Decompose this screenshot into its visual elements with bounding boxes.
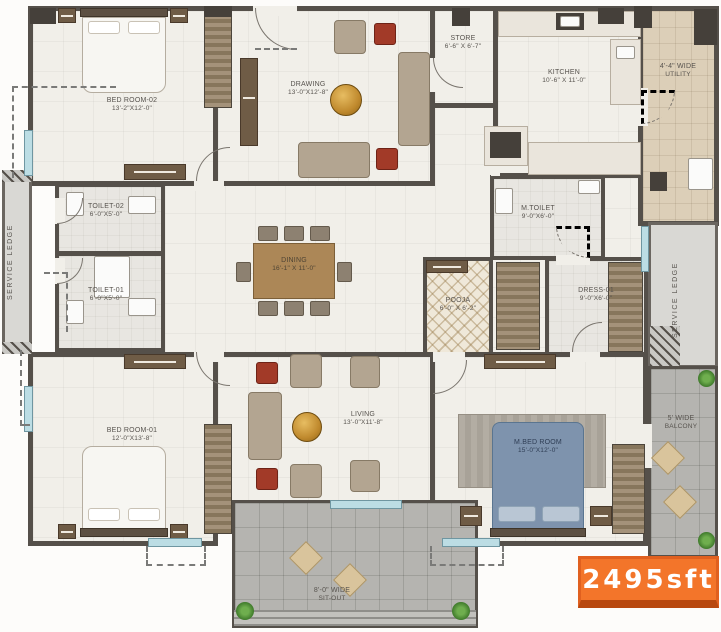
bedroom2-pillow-right [128,21,160,34]
bedroom1-nightstand-left [58,524,76,539]
mbedroom-pillow-right [542,506,580,522]
dashed-line [502,546,504,566]
bedroom2-nightstand-left [58,8,76,23]
mbedroom-pillow-left [498,506,536,522]
dashed-line [430,546,432,566]
bedroom1-pillow-right [128,508,160,521]
living-sitout-window [330,500,402,509]
balcony-plant-bottom [698,532,715,549]
drawing-loveseat [298,142,370,178]
bedroom2-nightstand-right [170,8,188,23]
dining-chair [284,301,304,316]
dashed-line [204,546,206,566]
bedroom2-dresser [124,164,186,180]
room-name: KITCHEN [516,68,612,77]
living-coffee-table [292,412,322,442]
floor-plan: BED ROOM-02 13'-2"X12'-0" DRAWING 13'-0"… [0,0,721,632]
pooja-shrine [426,260,468,273]
dining-chair [258,301,278,316]
dashed-line [146,564,206,566]
bedroom2-wardrobe [204,10,232,108]
room-name: STORE [425,34,501,43]
room-dims: 10'-6" X 11'-0" [516,77,612,85]
room-name: BED ROOM-01 [70,426,194,435]
bedroom1-wardrobe [204,424,232,534]
room-name: BED ROOM-02 [70,96,194,105]
bedroom1-label: BED ROOM-01 12'-0"X13'-8" [70,426,194,444]
mbedroom-label: M.BED ROOM 15'-0"X12'-0" [494,438,582,456]
room-name: POOJA [424,296,492,305]
duct-bedroom2-top [204,6,232,17]
room-dims: BALCONY [646,423,716,431]
room-name: M.TOILET [498,204,578,213]
service-ledge-right-label: SERVICE LEDGE [672,248,690,352]
living-chair-bottom-right [350,460,380,492]
dining-chair [258,226,278,241]
dashed-line [430,564,504,566]
living-armchair-bottom [290,464,322,498]
duct-top-left [30,8,56,24]
drawing-stool-red-bottom [376,148,398,170]
room-name: TOILET-01 [64,286,148,295]
kitchen-sink [616,46,635,59]
service-ledge-left-label: SERVICE LEDGE [7,212,25,312]
area-badge: 2495sft [578,556,719,608]
kitchen-stove-grate [560,16,580,27]
dress-wardrobe-right [608,262,643,352]
room-dims: UTILITY [642,71,714,79]
room-dims: 9'-0"X6'-0" [498,213,578,221]
room-name: 4'-4" WIDE [642,62,714,71]
toilet1-label: TOILET-01 6'-0"X5'-0" [64,286,148,304]
toilet2-label: TOILET-02 6'-0"X5'-0" [64,202,148,220]
entrance-door-dash [255,48,297,50]
room-dims: 9'-0"X6'-0" [554,295,638,303]
dashed-line [12,86,14,178]
mtoilet-basin [578,180,600,194]
dashed-line [20,424,30,426]
dress-wardrobe-left [496,262,540,350]
living-sofa-vertical [248,392,282,460]
kitchen-range [490,132,521,158]
room-dims: 13'-0"X12'-8" [258,89,358,97]
duct-store-top [452,8,470,26]
dining-chair [236,262,251,282]
mbedroom-headboard [490,528,586,537]
utility-label: 4'-4" WIDE UTILITY [642,62,714,80]
room-dims: 12'-0"X13'-8" [70,435,194,443]
living-stool-red-bottom [256,468,278,490]
bedroom2-headboard [80,8,168,17]
utility-washbasin [688,158,713,190]
sitout-label: 8'-0" WIDE SIT-OUT [292,586,372,604]
dining-chair [337,262,352,282]
kitchen-label: KITCHEN 10'-6" X 11'-0" [516,68,612,86]
living-stool-red-top [256,362,278,384]
living-floor [213,352,435,508]
dining-chair [310,301,330,316]
bedroom1-window-bottom [148,538,202,547]
store-label: STORE 6'-6" X 6'-7" [425,34,501,52]
dining-label: DINING 16'-1" X 11'-0" [255,256,333,274]
toilet1-basin [66,300,84,324]
room-dims: 15'-0"X12'-0" [494,447,582,455]
duct-utility-top [634,6,652,28]
room-dims: SIT-OUT [292,595,372,603]
bedroom1-nightstand-right [170,524,188,539]
dashed-line [146,546,148,566]
room-dims: 13'-2"X12'-0" [70,105,194,113]
room-name: 8'-0" WIDE [292,586,372,595]
sitout-plant-left [236,602,254,620]
room-dims: 13'-0"X11'-8" [322,419,404,427]
dashed-line [44,272,68,274]
drawing-tv-cabinet [240,58,258,146]
drawing-stool-red-top [374,23,396,45]
dress-ledge-window [641,226,649,272]
dining-chair [284,226,304,241]
room-name: M.BED ROOM [494,438,582,447]
dress1-door-gap [570,352,600,362]
mbedroom-stool-left [460,506,482,526]
room-name: TOILET-02 [64,202,148,211]
room-name: DRAWING [258,80,358,89]
ledge-left-cap-bottom [2,342,32,354]
drawing-sofa-vertical [398,52,430,146]
duct-kitchen-top [598,8,624,24]
mbedroom-wardrobe [612,444,645,534]
drawing-label: DRAWING 13'-0"X12'-8" [258,80,358,98]
bedroom1-dresser [124,354,186,369]
living-label: LIVING 13'-0"X11'-8" [322,410,404,428]
bedroom1-pillow-left [88,508,120,521]
dashed-line [20,350,22,426]
room-dims: 6'-0"X5'-0" [64,295,148,303]
dress1-label: DRESS-01 9'-0"X6'-0" [554,286,638,304]
room-dims: 16'-1" X 11'-0" [255,265,333,273]
bedroom2-door-gap [194,181,224,191]
room-name: DRESS-01 [554,286,638,295]
dining-chair [310,226,330,241]
mbedroom-stool-right [590,506,612,526]
sitout-plant-right [452,602,470,620]
utility-drain [650,172,667,191]
bedroom1-headboard [80,528,168,537]
bedroom2-pillow-left [88,21,120,34]
balcony-plant-top [698,370,715,387]
room-name: DINING [255,256,333,265]
mbedroom-tv-unit [484,354,556,369]
drawing-armchair [334,20,366,54]
pooja-label: POOJA 6'-0" X 6'-2" [424,296,492,314]
balcony-label: 5' WIDE BALCONY [646,414,716,432]
mbedroom-window-bottom [442,538,500,547]
room-name: LIVING [322,410,404,419]
sitout-steps [234,610,476,626]
bedroom2-window [24,130,33,176]
bedroom2-label: BED ROOM-02 13'-2"X12'-0" [70,96,194,114]
room-name: 5' WIDE [646,414,716,423]
kitchen-counter-bottom [528,142,641,175]
utility-duct-panel [694,9,717,45]
room-dims: 6'-0"X5'-0" [64,211,148,219]
dashed-line [12,86,116,88]
room-dims: 6'-0" X 6'-2" [424,305,492,313]
mtoilet-label: M.TOILET 9'-0"X6'-0" [498,204,578,222]
living-chair-top-right [350,356,380,388]
room-dims: 6'-6" X 6'-7" [425,43,501,51]
living-armchair-top [290,354,322,388]
